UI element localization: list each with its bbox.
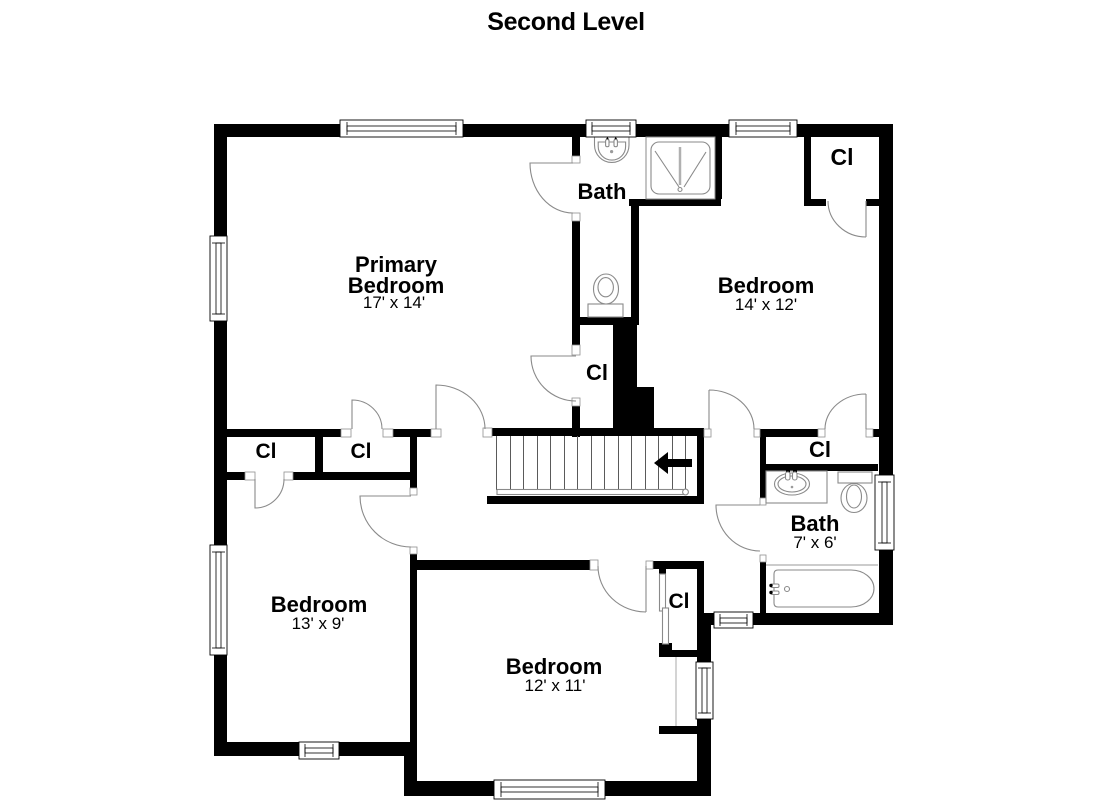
svg-text:13' x 9': 13' x 9' — [292, 614, 345, 633]
svg-text:Cl: Cl — [351, 440, 372, 463]
svg-text:Bath: Bath — [578, 179, 627, 204]
svg-text:Second Level: Second Level — [487, 8, 645, 36]
svg-text:Cl: Cl — [669, 590, 690, 613]
svg-text:17' x 14': 17' x 14' — [363, 293, 425, 312]
svg-text:14' x 12': 14' x 12' — [735, 295, 797, 314]
svg-text:Cl: Cl — [256, 440, 277, 463]
svg-text:Cl: Cl — [831, 144, 854, 170]
svg-text:7' x 6': 7' x 6' — [793, 533, 836, 552]
svg-text:12' x 11': 12' x 11' — [525, 676, 586, 695]
svg-text:Cl: Cl — [809, 437, 831, 462]
svg-text:Cl: Cl — [586, 360, 608, 385]
